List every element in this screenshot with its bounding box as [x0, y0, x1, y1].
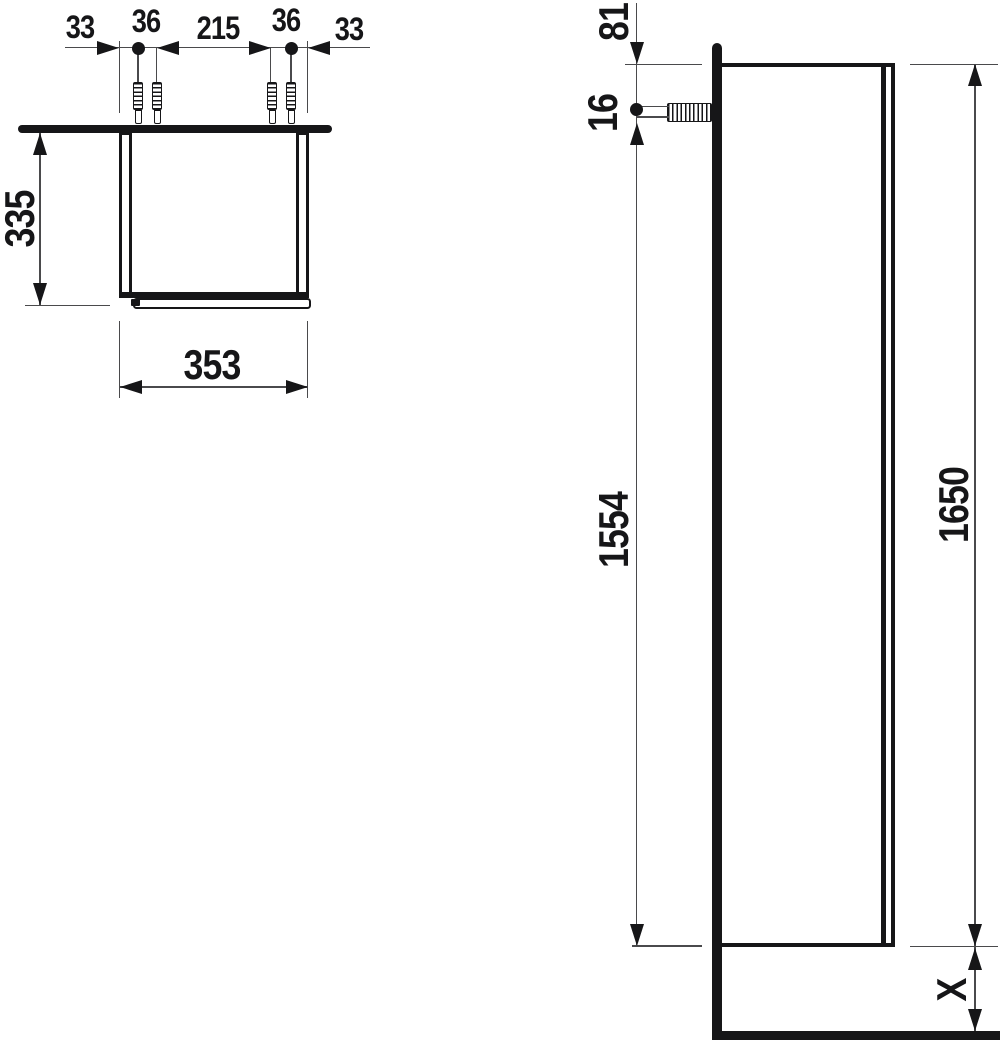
top-offset-dim-label: 81: [593, 3, 635, 41]
depth-dim-label: 335: [0, 190, 41, 247]
dim-arrow-down: [33, 283, 47, 305]
wall-plug-icon: [286, 82, 296, 124]
dim-label-edge-offset-right: 33: [335, 13, 364, 45]
dim-arrow-up: [968, 948, 982, 970]
datum-dot: [285, 42, 298, 55]
dim-arrow-up: [630, 123, 644, 145]
wall-line: [712, 43, 722, 1040]
datum-dot: [132, 42, 145, 55]
extension-line: [25, 305, 110, 307]
dim-arrow-right: [286, 380, 308, 394]
dim-arrow-up: [33, 133, 47, 155]
width-dim-label: 353: [183, 344, 240, 386]
dimension-line: [974, 64, 976, 1031]
clearance-dim-label: X: [931, 978, 973, 1001]
cabinet-body: [722, 63, 896, 947]
dim-arrow-up: [968, 64, 982, 86]
dim-arrow-left: [308, 41, 330, 55]
extension-line: [910, 64, 998, 66]
lower-height-dim-label: 1554: [593, 492, 635, 568]
door-panel: [133, 298, 311, 309]
wall-plug-icon: [152, 82, 162, 124]
total-height-dim-label: 1650: [933, 467, 975, 543]
datum-dot: [630, 103, 643, 116]
dim-arrow-left: [120, 380, 142, 394]
dim-arrow-down: [630, 42, 644, 64]
hole-dim-label: 16: [582, 94, 624, 132]
leader-line: [137, 54, 139, 83]
dim-label-edge-offset-left: 33: [66, 11, 95, 43]
leader-line: [290, 54, 292, 83]
dim-label-plug-pair-left: 36: [132, 5, 161, 37]
cabinet-front-edge: [119, 292, 309, 298]
wall-section: [18, 125, 332, 133]
technical-drawing: 33 36 215 36 33 335: [0, 0, 1000, 1040]
side-view: 81 16 1554 1650 X: [580, 0, 1000, 1040]
dim-arrow-down: [630, 924, 644, 946]
dim-arrow-down: [968, 924, 982, 946]
dim-label-plug-pair-right: 36: [272, 4, 301, 36]
extension-line: [119, 41, 121, 113]
plan-view: 33 36 215 36 33 335: [0, 0, 420, 420]
dim-arrow-right: [249, 41, 271, 55]
hole-leader-line: [637, 116, 669, 118]
dim-arrow-down: [968, 1009, 982, 1031]
wall-plug-icon: [133, 82, 143, 124]
floor-line: [712, 1031, 1000, 1040]
door-hinge-detail: [131, 299, 140, 306]
extension-line: [910, 946, 998, 948]
dim-arrow-left: [157, 41, 179, 55]
wall-plug-icon: [667, 103, 712, 122]
dim-arrow-right: [97, 41, 119, 55]
dim-label-plug-spacing: 215: [197, 12, 240, 44]
cabinet-right-panel: [296, 132, 309, 297]
wall-plug-icon: [267, 82, 277, 124]
door-front-line: [881, 67, 886, 943]
cabinet-left-panel: [119, 132, 132, 297]
